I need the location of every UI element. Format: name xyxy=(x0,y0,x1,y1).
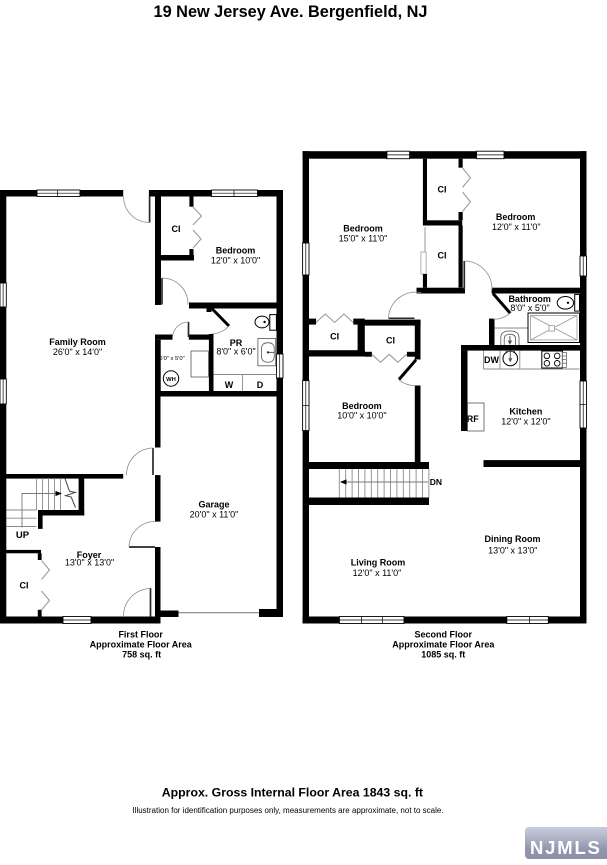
svg-text:WH: WH xyxy=(166,377,176,383)
svg-text:1085 sq. ft: 1085 sq. ft xyxy=(421,649,465,659)
svg-text:CI: CI xyxy=(20,581,29,591)
svg-text:12'0" x 11'0": 12'0" x 11'0" xyxy=(353,568,402,578)
svg-text:Family Room: Family Room xyxy=(49,337,106,347)
svg-text:12'0" x 10'0": 12'0" x 10'0" xyxy=(211,256,260,266)
svg-text:13'0" x 13'0": 13'0" x 13'0" xyxy=(488,546,537,556)
svg-text:19 New Jersey Ave. Bergenfield: 19 New Jersey Ave. Bergenfield, NJ xyxy=(154,3,428,21)
svg-text:Living Room: Living Room xyxy=(351,558,406,568)
svg-text:Second Floor: Second Floor xyxy=(415,629,473,639)
svg-text:758 sq. ft: 758 sq. ft xyxy=(122,649,161,659)
svg-text:DN: DN xyxy=(430,477,442,487)
svg-text:First Floor: First Floor xyxy=(118,629,163,639)
svg-text:8'0" x 5'0": 8'0" x 5'0" xyxy=(510,303,549,313)
svg-text:15'0" x 11'0": 15'0" x 11'0" xyxy=(339,234,388,244)
svg-text:8'0" x 6'0": 8'0" x 6'0" xyxy=(216,347,255,357)
svg-text:5'0" x 5'0": 5'0" x 5'0" xyxy=(159,356,184,362)
svg-text:RF: RF xyxy=(467,414,479,424)
svg-text:20'0" x 11'0": 20'0" x 11'0" xyxy=(190,510,239,520)
svg-text:Dining Room: Dining Room xyxy=(485,534,541,544)
svg-text:D: D xyxy=(257,380,264,390)
svg-text:12'0" x 11'0": 12'0" x 11'0" xyxy=(492,222,541,232)
svg-text:10'0" x 10'0": 10'0" x 10'0" xyxy=(337,411,386,421)
svg-text:Garage: Garage xyxy=(198,500,229,510)
svg-text:Illustration for identificatio: Illustration for identification purposes… xyxy=(132,806,443,815)
svg-text:CI: CI xyxy=(438,185,447,195)
svg-text:Approximate Floor Area: Approximate Floor Area xyxy=(392,639,495,649)
svg-text:DW: DW xyxy=(484,355,499,365)
svg-text:UP: UP xyxy=(16,530,30,541)
svg-text:W: W xyxy=(225,380,234,390)
svg-text:CI: CI xyxy=(172,224,181,234)
svg-text:Bedroom: Bedroom xyxy=(216,246,256,256)
svg-text:CI: CI xyxy=(438,251,447,261)
svg-text:Bedroom: Bedroom xyxy=(343,223,383,233)
svg-text:Approximate Floor Area: Approximate Floor Area xyxy=(90,639,193,649)
svg-text:Kitchen: Kitchen xyxy=(509,407,542,417)
svg-text:Approx. Gross Internal Floor A: Approx. Gross Internal Floor Area 1843 s… xyxy=(162,786,423,800)
svg-text:Bedroom: Bedroom xyxy=(496,212,536,222)
svg-text:CI: CI xyxy=(330,332,339,342)
svg-text:CI: CI xyxy=(386,335,395,345)
svg-text:26'0" x 14'0": 26'0" x 14'0" xyxy=(53,347,102,357)
svg-text:13'0" x 13'0": 13'0" x 13'0" xyxy=(65,558,114,568)
svg-text:12'0" x 12'0": 12'0" x 12'0" xyxy=(501,416,550,426)
